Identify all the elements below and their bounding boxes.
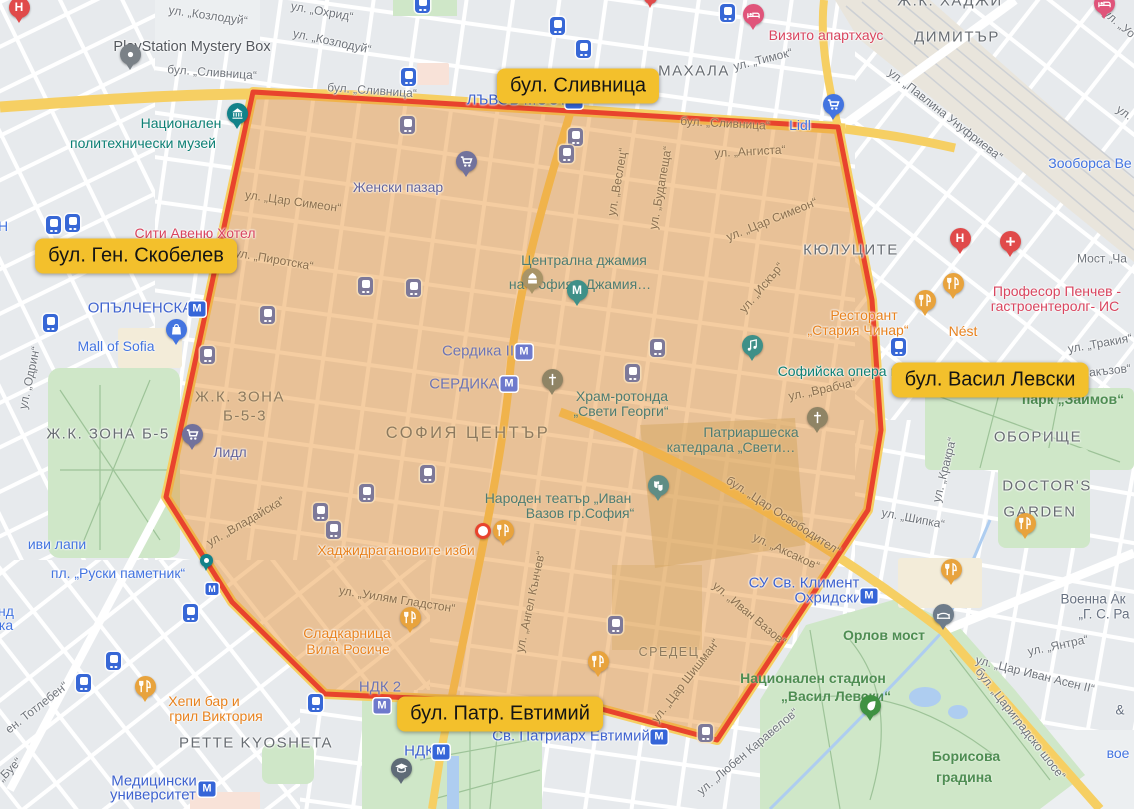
metro-station-label[interactable]: университет xyxy=(110,788,196,805)
area-label: PETTE KYOSHETA xyxy=(179,736,333,753)
tram-stop-icon[interactable] xyxy=(568,128,583,146)
tram-stop-icon[interactable] xyxy=(326,521,341,539)
hotel-bed-pin[interactable] xyxy=(743,4,764,25)
metro-station-label[interactable]: НДК xyxy=(404,744,434,761)
supermarket-cart-pin[interactable] xyxy=(182,424,203,445)
map-viewport[interactable]: ул. „Козлодуй“ ул. „Охрид“ ул. „Козлодуй… xyxy=(0,0,1134,809)
area-label: Ж.К. ЗОНА xyxy=(195,390,285,407)
poi-label-church[interactable]: „Свети Георги“ xyxy=(573,404,668,420)
tram-stop-icon[interactable] xyxy=(308,694,323,712)
poi-label-restaurant[interactable]: грил Виктория xyxy=(169,709,262,725)
mosque-pin[interactable] xyxy=(522,268,543,289)
poi-label-lidl-store[interactable]: Lidl xyxy=(789,118,811,134)
area-label: DOCTOR'S xyxy=(1002,479,1092,496)
poi-label-square[interactable]: пл. „Руски паметник“ xyxy=(51,566,185,582)
museum-metro-pin[interactable]: М xyxy=(567,280,588,301)
poi-label-theatre[interactable]: Вазов гр.София“ xyxy=(526,506,635,522)
metro-icon[interactable]: М xyxy=(501,377,518,392)
metro-station-label[interactable]: НДК 2 xyxy=(359,680,401,697)
tram-stop-icon[interactable] xyxy=(200,346,215,364)
area-label: GARDEN xyxy=(1003,505,1076,522)
poi-label-market[interactable]: Женски пазар xyxy=(353,180,443,196)
tram-stop-icon[interactable] xyxy=(313,503,328,521)
tram-stop-icon[interactable] xyxy=(46,216,61,234)
area-label: Б-5-3 xyxy=(223,409,267,426)
metro-station-label[interactable]: ОПЪЛЧЕНСКА xyxy=(88,301,193,318)
restaurant-pin[interactable] xyxy=(941,559,962,580)
restaurant-pin[interactable] xyxy=(493,520,514,541)
metro-icon[interactable]: М xyxy=(516,345,533,360)
street-label: Мост „Ча xyxy=(1077,252,1127,265)
restaurant-pin[interactable] xyxy=(135,676,156,697)
poi-label-partial: вое xyxy=(1107,746,1130,762)
area-label: ДИМИТЪР xyxy=(914,30,1000,47)
park-leaf-pin[interactable] xyxy=(860,695,881,716)
tram-stop-icon[interactable] xyxy=(260,306,275,324)
hospital-pin[interactable]: H xyxy=(9,0,30,18)
restaurant-pin[interactable] xyxy=(588,651,609,672)
university-cap-pin[interactable] xyxy=(391,758,412,779)
park-label: Борисова xyxy=(932,749,1000,765)
park-label: градина xyxy=(936,770,992,786)
tram-stop-icon[interactable] xyxy=(400,116,415,134)
area-label: СОФИЯ ЦЕНТЪР xyxy=(386,424,551,442)
metro-station-label[interactable]: СЕРДИКА xyxy=(429,377,499,394)
tram-stop-icon[interactable] xyxy=(76,674,91,692)
poi-label-cathedral[interactable]: катедрала „Свети… xyxy=(667,440,796,456)
poi-label-supermarket[interactable]: Лидл xyxy=(213,445,246,461)
tram-stop-icon[interactable] xyxy=(65,214,80,232)
theater-masks-pin[interactable] xyxy=(648,475,669,496)
area-label: МАХАЛА xyxy=(658,64,730,81)
poi-label-restaurant[interactable]: Сладкарница xyxy=(303,626,391,642)
tram-stop-icon[interactable] xyxy=(359,484,374,502)
restaurant-pin[interactable] xyxy=(943,273,964,294)
metro-icon[interactable]: М xyxy=(199,782,216,797)
annotation-slivnitsa: бул. Сливница xyxy=(497,69,659,104)
poi-label-opera[interactable]: Софийска опера и xyxy=(778,364,899,380)
tram-stop-icon[interactable] xyxy=(720,4,735,22)
poi-label-aparthotel[interactable]: Визито апартхаус xyxy=(769,28,884,44)
metro-icon[interactable]: М xyxy=(433,745,450,760)
supermarket-cart-pin[interactable] xyxy=(823,94,844,115)
poi-label-partial[interactable]: иви лапи xyxy=(28,537,86,553)
tram-stop-icon[interactable] xyxy=(106,652,121,670)
poi-label-restaurant[interactable]: Хаджидрагановите изби xyxy=(317,543,474,559)
area-label: СРЕДЕЦ xyxy=(639,645,700,659)
poi-label-academy: „Г. С. Ра xyxy=(1079,606,1130,621)
playstation-shop-pin[interactable] xyxy=(120,44,141,65)
metro-icon[interactable]: М xyxy=(189,302,206,317)
tram-stop-icon[interactable] xyxy=(891,338,906,356)
park-label: Национален стадион xyxy=(740,671,886,687)
market-cart-pin[interactable] xyxy=(456,151,477,172)
restaurant-pin[interactable] xyxy=(1015,513,1036,534)
tram-stop-icon[interactable] xyxy=(420,465,435,483)
church-pin[interactable] xyxy=(542,369,563,390)
tram-stop-icon[interactable] xyxy=(559,145,574,163)
tram-stop-icon[interactable] xyxy=(576,40,591,58)
annotation-vasil-levski: бул. Васил Левски xyxy=(892,363,1089,398)
area-label: Ж.К. ХАДЖИ xyxy=(897,0,1002,10)
region-center-marker xyxy=(475,523,491,539)
tram-stop-icon[interactable] xyxy=(43,314,58,332)
poi-label-mosque[interactable]: Централна джамия xyxy=(521,253,647,269)
poi-label-partial[interactable]: Зооборса Ве xyxy=(1048,156,1131,172)
poi-label-mall[interactable]: Mall of Sofia xyxy=(77,339,154,355)
tram-stop-icon[interactable] xyxy=(183,604,198,622)
tram-stop-icon[interactable] xyxy=(608,616,623,634)
poi-label-restaurant[interactable]: „Стария Чинар“ xyxy=(807,323,908,339)
bridge-pin[interactable] xyxy=(933,604,954,625)
restaurant-pin[interactable] xyxy=(915,290,936,311)
tram-stop-icon[interactable] xyxy=(698,724,713,742)
annotation-skobelev: бул. Ген. Скобелев xyxy=(35,239,237,274)
restaurant-pin[interactable] xyxy=(400,607,421,628)
metro-icon[interactable]: М xyxy=(206,583,219,595)
metro-icon[interactable]: М xyxy=(651,730,668,745)
square-marker-pin[interactable] xyxy=(200,554,213,567)
shopping-bag-pin[interactable] xyxy=(166,319,187,340)
tram-stop-icon[interactable] xyxy=(406,279,421,297)
opera-music-pin[interactable] xyxy=(742,335,763,356)
annotation-patr-evtimiy: бул. Патр. Евтимий xyxy=(397,697,603,732)
poi-label-museum[interactable]: политехнически музей xyxy=(70,136,216,152)
poi-label-partial: ка xyxy=(0,618,13,634)
metro-icon[interactable]: М xyxy=(861,589,878,604)
metro-station-label[interactable]: Охридски xyxy=(795,591,862,608)
poi-label-partial: Н xyxy=(0,219,8,235)
metro-station-label[interactable]: Сердика II xyxy=(442,344,514,361)
tram-stop-icon[interactable] xyxy=(401,68,416,86)
clinic-cross-pin[interactable] xyxy=(1000,231,1021,252)
poi-label-restaurant[interactable]: Вила Росиче xyxy=(306,642,389,658)
tram-stop-icon[interactable] xyxy=(650,339,665,357)
area-label: КЮЛУЦИТЕ xyxy=(803,243,899,260)
tram-stop-icon[interactable] xyxy=(358,277,373,295)
church-pin[interactable] xyxy=(807,407,828,428)
metro-icon[interactable]: М xyxy=(374,699,391,714)
poi-label-museum[interactable]: Национален xyxy=(141,116,222,132)
area-label: ОБОРИЩЕ xyxy=(994,430,1082,447)
poi-label-partial: & xyxy=(1115,702,1124,717)
hospital-pin[interactable]: H xyxy=(950,228,971,249)
museum-pin[interactable] xyxy=(227,103,248,124)
poi-label-academy: Военна Ак xyxy=(1060,591,1125,606)
park-label: Орлов мост xyxy=(843,628,925,644)
tram-stop-icon[interactable] xyxy=(415,0,430,13)
tram-stop-icon[interactable] xyxy=(550,17,565,35)
poi-label-restaurant[interactable]: Nést xyxy=(949,324,978,340)
area-label: Ж.К. ЗОНА Б-5 xyxy=(46,427,169,444)
tram-stop-icon[interactable] xyxy=(625,364,640,382)
poi-label-clinic[interactable]: гастроентеролг- ИС xyxy=(991,299,1119,315)
